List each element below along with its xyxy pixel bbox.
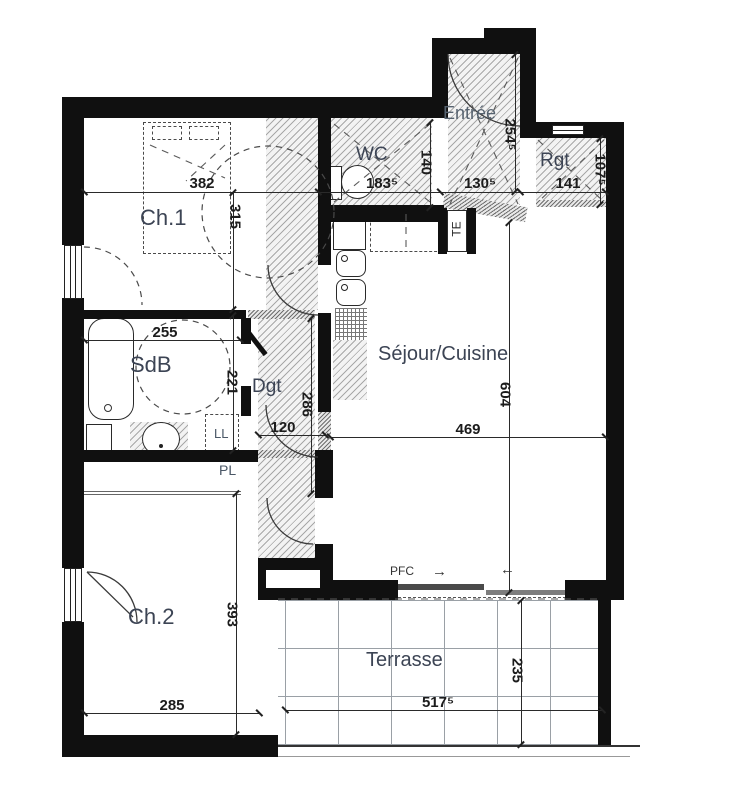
dim-ch1-width: 382 [180,175,224,192]
room-label-entree: Entrée [443,103,496,124]
dim-dgt-width: 120 [261,419,305,436]
dim-sdb-height: 221 [224,361,241,405]
dim-sdb-width: 255 [143,324,187,341]
room-label-wc: WC [356,144,388,166]
dim-terrasse-width: 517⁵ [416,694,460,711]
plan-curves-layer [0,0,751,800]
room-label-dgt: Dgt [252,376,282,398]
label-te: TE [450,221,464,236]
dim-ch1-height: 315 [227,195,244,239]
room-label-terrasse: Terrasse [366,649,443,672]
dim-terrasse-height: 235 [509,649,526,693]
room-label-sejour: Séjour/Cuisine [378,343,508,366]
room-label-sdb: SdB [130,352,172,378]
room-label-rgt: Rgt [540,150,570,172]
label-pfc: PFC [390,564,414,578]
dim-ch2-width: 285 [150,697,194,714]
label-pl: PL [219,462,236,478]
dim-wc-width: 183⁵ [360,175,404,192]
dim-sejour-height: 604 [497,373,514,417]
room-label-ch1: Ch.1 [140,205,186,231]
slide-arrow-right: → [432,563,447,580]
slide-arrow-left: ← [500,561,515,578]
dim-sejour-width: 469 [446,421,490,438]
dim-ch2-height: 393 [224,593,241,637]
floor-plan: 382 183⁵ 130⁵ 141 315 140 254⁵ 107⁵ 255 … [0,0,751,800]
turning-circle-ch1 [202,146,334,278]
dim-rgt-height: 107⁵ [592,148,609,192]
room-label-ch2: Ch.2 [128,604,174,630]
dim-rgt-width: 141 [546,175,590,192]
dim-entree-height: 254⁵ [502,113,519,157]
dim-wc-height: 140 [418,141,435,185]
door-arc-ch2 [267,498,313,544]
label-ll: LL [214,426,228,441]
window-casement-leaf-ch2 [87,572,133,617]
dim-line-top [84,192,606,193]
window-casement-arc-ch1 [84,247,142,305]
dim-entree-width: 130⁵ [458,175,502,192]
